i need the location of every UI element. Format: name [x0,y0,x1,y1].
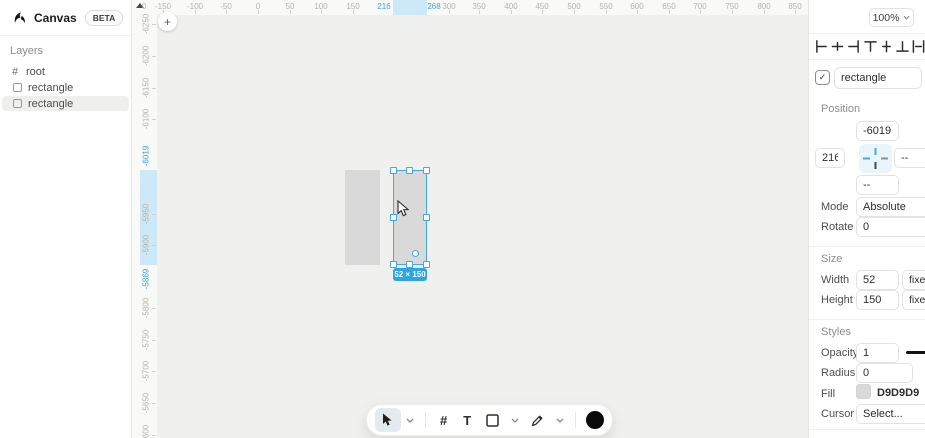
width-input[interactable] [856,270,899,290]
position-right-input[interactable] [894,148,925,168]
height-input[interactable] [856,290,899,310]
cursor-arrow-icon [382,413,394,427]
layer-row-rectangle-2-selected[interactable]: rectangle [2,96,129,111]
ruler-label: -5950 [142,204,151,224]
corner-radius-handle[interactable] [412,250,419,257]
resize-handle-bottom-left[interactable] [390,261,397,268]
ruler-tick [479,10,480,14]
rotate-input[interactable] [856,217,925,237]
bottom-toolbar: # T [366,404,613,436]
resize-handle-top-right[interactable] [423,167,430,174]
ruler-tick [353,10,354,14]
ruler-selection-label: -6019 [142,146,151,166]
ruler-label: -5700 [142,361,151,381]
position-y-input[interactable] [856,121,899,141]
align-left-icon[interactable] [815,40,828,53]
layers-panel-header: Layers [0,36,131,64]
sidebar-header: Canvas BETA [0,0,131,36]
ruler-tick [732,10,733,14]
panel-divider [809,246,925,247]
beta-badge: BETA [85,10,124,26]
ruler-label: -5900 [142,235,151,255]
fill-hex-value[interactable]: D9D9D9 [877,387,919,399]
zoom-dropdown[interactable]: 100% [869,8,914,27]
ruler-tick [700,10,701,14]
chevron-down-icon [903,15,910,20]
panel-divider [809,33,925,34]
opacity-slider[interactable] [906,351,925,354]
rectangle-layer-icon [13,83,22,92]
ruler-tick [152,371,156,372]
position-bottom-input[interactable] [856,175,899,195]
ruler-tick [152,308,156,309]
ruler-selection-label: 216 [377,2,390,11]
ruler-label: -5750 [142,330,151,350]
rectangle-layer-icon [13,99,22,108]
ruler-tick [226,10,227,14]
inspector-panel: 100% ✓ Position Mode Ab [808,0,925,438]
ruler-tick [542,10,543,14]
align-horizontal-center-icon[interactable] [831,40,844,53]
visibility-checkbox[interactable]: ✓ [815,70,830,85]
ruler-tick [152,214,156,215]
radius-input[interactable] [856,363,913,383]
ruler-tick [606,10,607,14]
cursor-label: Cursor [821,408,854,420]
frame-tool-button[interactable]: # [440,413,447,428]
height-mode-select[interactable]: fixed [902,290,925,310]
mouse-cursor-icon [397,200,411,217]
layer-row-rectangle-1[interactable]: rectangle [2,80,129,95]
ruler-tick [574,10,575,14]
mode-label: Mode [821,201,849,213]
resize-handle-bottom-right[interactable] [423,261,430,268]
fill-label: Fill [821,388,835,400]
canvas-area[interactable]: -6250-6200-6150-6100-5950-5900-5800-5750… [132,0,808,438]
add-button[interactable]: + [158,12,177,31]
ruler-label: -6100 [142,109,151,129]
mode-select[interactable]: Absolute [856,197,925,217]
ruler-tick [511,10,512,14]
ruler-selection-label: -5869 [142,269,151,289]
rotate-label: Rotate [821,221,853,233]
panel-divider [809,59,925,60]
ruler-label: -5650 [142,393,151,413]
anchor-widget[interactable] [859,144,892,173]
ruler-label: -5600 [142,425,151,438]
cursor-select[interactable]: Select... [856,404,925,424]
opacity-label: Opacity [821,347,858,359]
ruler-tick [321,10,322,14]
resize-handle-bottom[interactable] [406,261,413,268]
ruler-tick [258,10,259,14]
canvas-rectangle-1[interactable] [345,170,380,265]
height-label: Height [821,294,853,306]
ruler-tick [195,10,196,14]
select-tool-chevron-icon[interactable] [406,418,414,423]
radius-label: Radius [821,367,855,379]
position-x-input[interactable] [815,148,845,168]
ruler-tick [152,245,156,246]
layer-label: rectangle [28,82,73,94]
resize-handle-top[interactable] [406,167,413,174]
align-vertical-center-icon[interactable] [880,40,893,53]
ruler-tick [152,24,156,25]
layer-name-input[interactable] [834,67,922,89]
ruler-tick [152,403,156,404]
resize-handle-left[interactable] [390,214,397,221]
ruler-tick [152,340,156,341]
vertical-ruler: -6250-6200-6150-6100-5950-5900-5800-5750… [132,0,157,438]
ruler-tick [290,10,291,14]
layer-row-root[interactable]: # root [2,64,129,79]
align-right-icon[interactable] [847,40,860,53]
horizontal-ruler: -150-100-5005010015030035040045050055060… [132,0,808,15]
pen-tool-chevron-icon[interactable] [556,418,564,423]
toolbar-divider [575,412,576,428]
zoom-value: 100% [873,12,900,24]
resize-handle-top-left[interactable] [390,167,397,174]
select-tool-button[interactable] [375,408,401,432]
ruler-selection-label: 268 [427,2,440,11]
ruler-tick [449,10,450,14]
layer-label: root [26,66,45,78]
width-label: Width [821,274,849,286]
fill-color-swatch[interactable] [856,384,871,399]
panel-divider [809,429,925,430]
app-title: Canvas [34,11,77,25]
styles-section-header: Styles [821,326,851,338]
panel-divider [809,319,925,320]
ruler-label: -6150 [142,78,151,98]
ruler-corner-label: 0 [142,2,146,11]
pen-tool-button[interactable] [531,414,544,427]
ruler-label: -6250 [142,14,151,34]
ruler-tick [669,10,670,14]
app-logo-icon [13,11,27,25]
align-bottom-icon[interactable] [896,40,909,53]
width-mode-select[interactable]: fixed [902,270,925,290]
ruler-tick [152,88,156,89]
ruler-tick [764,10,765,14]
ruler-label: -5800 [142,298,151,318]
ruler-tick [795,10,796,14]
frame-icon: # [10,66,20,78]
resize-handle-right[interactable] [423,214,430,221]
color-swatch-button[interactable] [586,411,604,429]
ruler-tick [152,119,156,120]
toolbar-divider [425,412,426,428]
layer-label: rectangle [28,98,73,110]
ruler-tick [152,56,156,57]
position-section-header: Position [821,103,860,115]
canvas-rectangle-2-selected[interactable] [393,170,427,265]
layers-sidebar: Canvas BETA Layers # root rectangle rect… [0,0,132,438]
opacity-input[interactable] [856,343,899,363]
rectangle-tool-button[interactable] [486,414,499,427]
shape-tool-chevron-icon[interactable] [511,418,519,423]
ruler-tick [637,10,638,14]
align-top-icon[interactable] [864,40,877,53]
text-tool-button[interactable]: T [463,413,471,428]
ruler-selection-band-h [393,0,427,15]
distribute-horizontal-icon[interactable] [912,40,925,53]
ruler-label: -6200 [142,46,151,66]
size-section-header: Size [821,253,842,265]
ruler-tick [152,435,156,436]
app-root: Canvas BETA Layers # root rectangle rect… [0,0,925,438]
selection-size-badge: 52 × 150 [393,268,427,281]
